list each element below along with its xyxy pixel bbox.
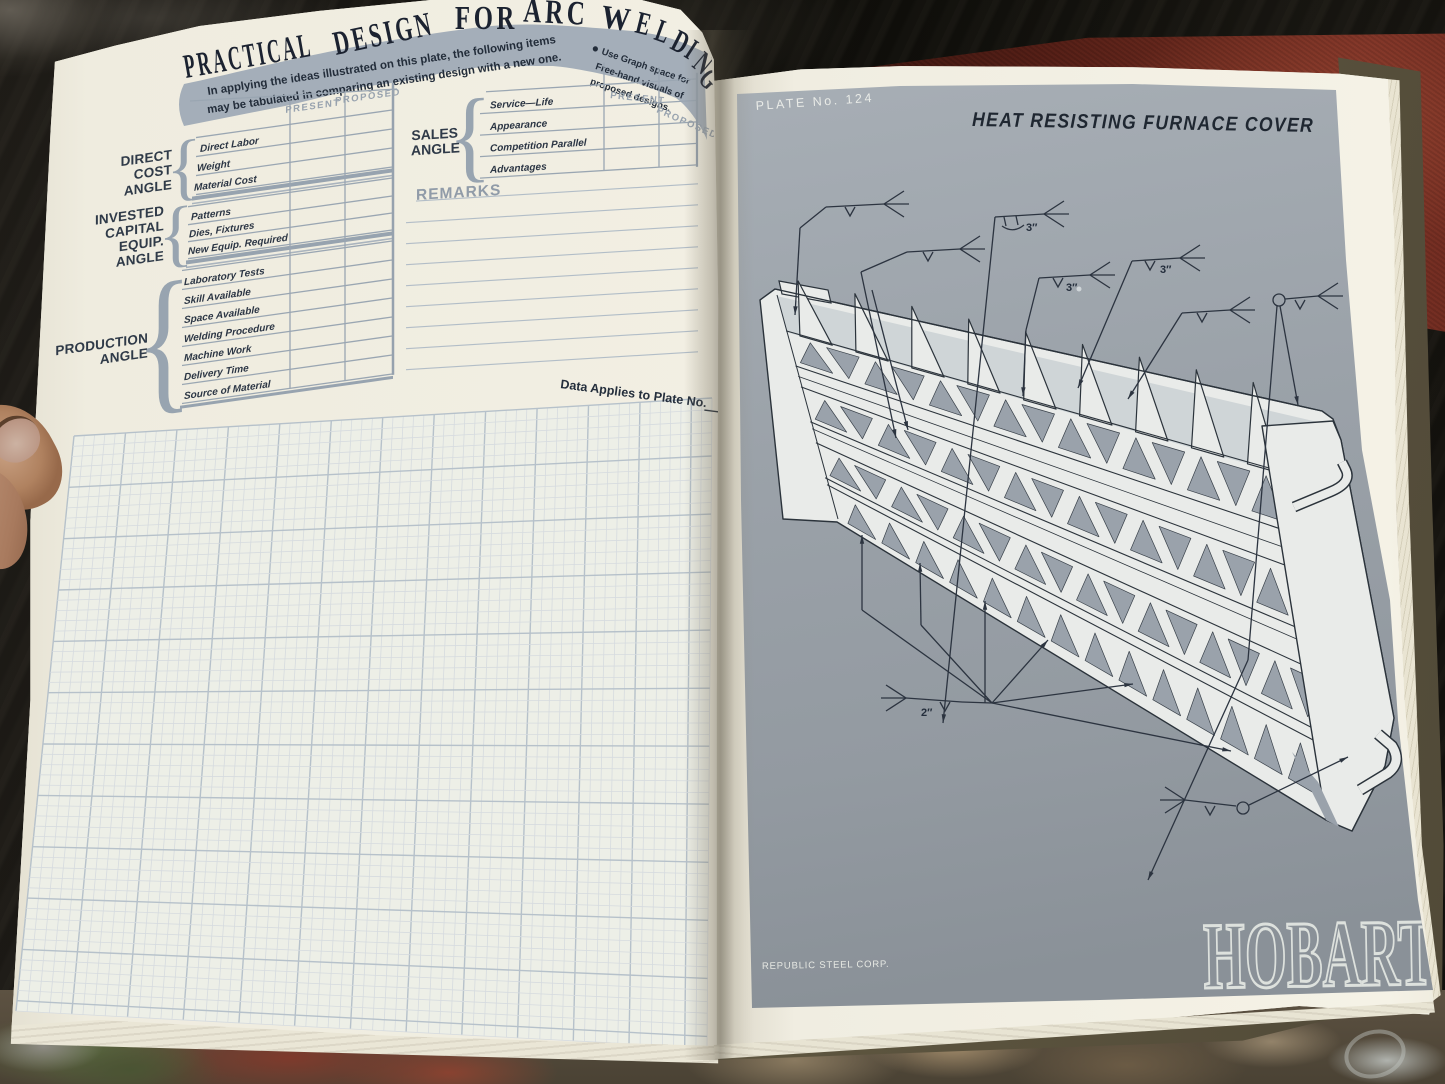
svg-text:3″: 3″ xyxy=(1160,264,1172,276)
svg-text:HOBART: HOBART xyxy=(1203,899,1435,1009)
svg-text:REPUBLIC STEEL CORP.: REPUBLIC STEEL CORP. xyxy=(762,959,890,972)
svg-text:3″: 3″ xyxy=(1026,222,1038,234)
svg-text:3″: 3″ xyxy=(1066,282,1078,294)
svg-text:2″: 2″ xyxy=(921,707,933,719)
